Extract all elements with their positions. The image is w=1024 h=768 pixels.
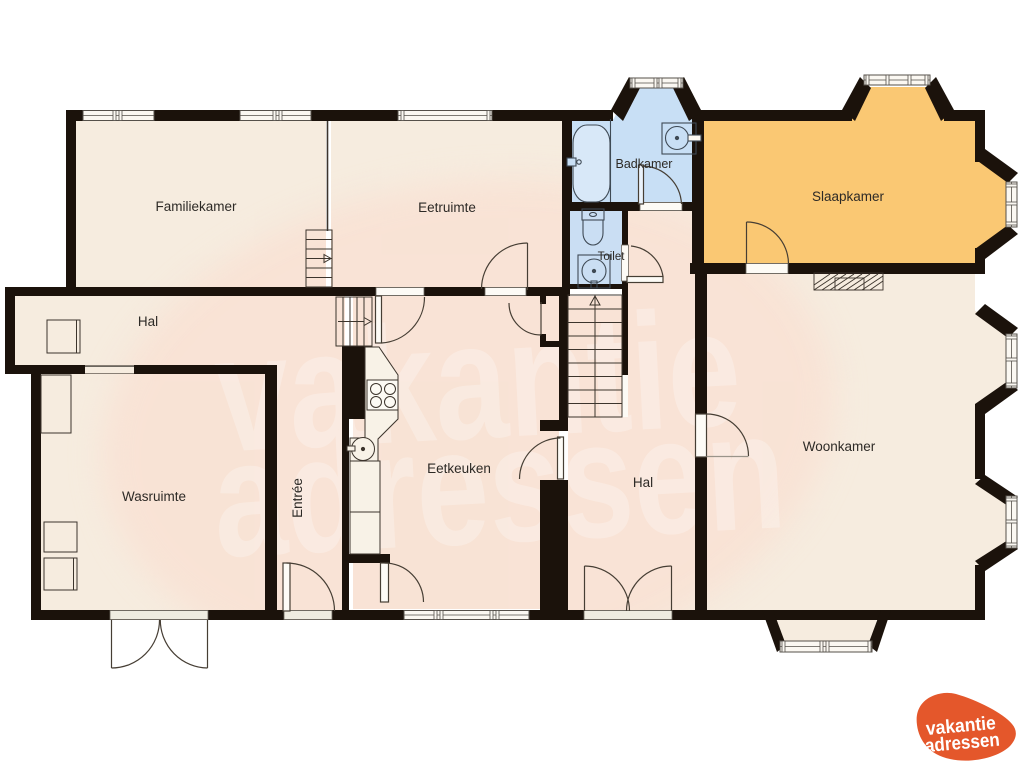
svg-text:Woonkamer: Woonkamer	[803, 439, 876, 454]
svg-text:Toilet: Toilet	[598, 251, 626, 263]
svg-text:Familiekamer: Familiekamer	[155, 199, 237, 214]
svg-text:Hal: Hal	[633, 475, 653, 490]
svg-text:Eetruimte: Eetruimte	[418, 200, 476, 215]
svg-text:Hal: Hal	[138, 314, 158, 329]
svg-text:Badkamer: Badkamer	[616, 157, 673, 171]
svg-text:Slaapkamer: Slaapkamer	[812, 189, 885, 204]
svg-text:Wasruimte: Wasruimte	[122, 489, 186, 504]
svg-text:Eetkeuken: Eetkeuken	[427, 461, 491, 476]
svg-text:Entrée: Entrée	[290, 478, 305, 518]
